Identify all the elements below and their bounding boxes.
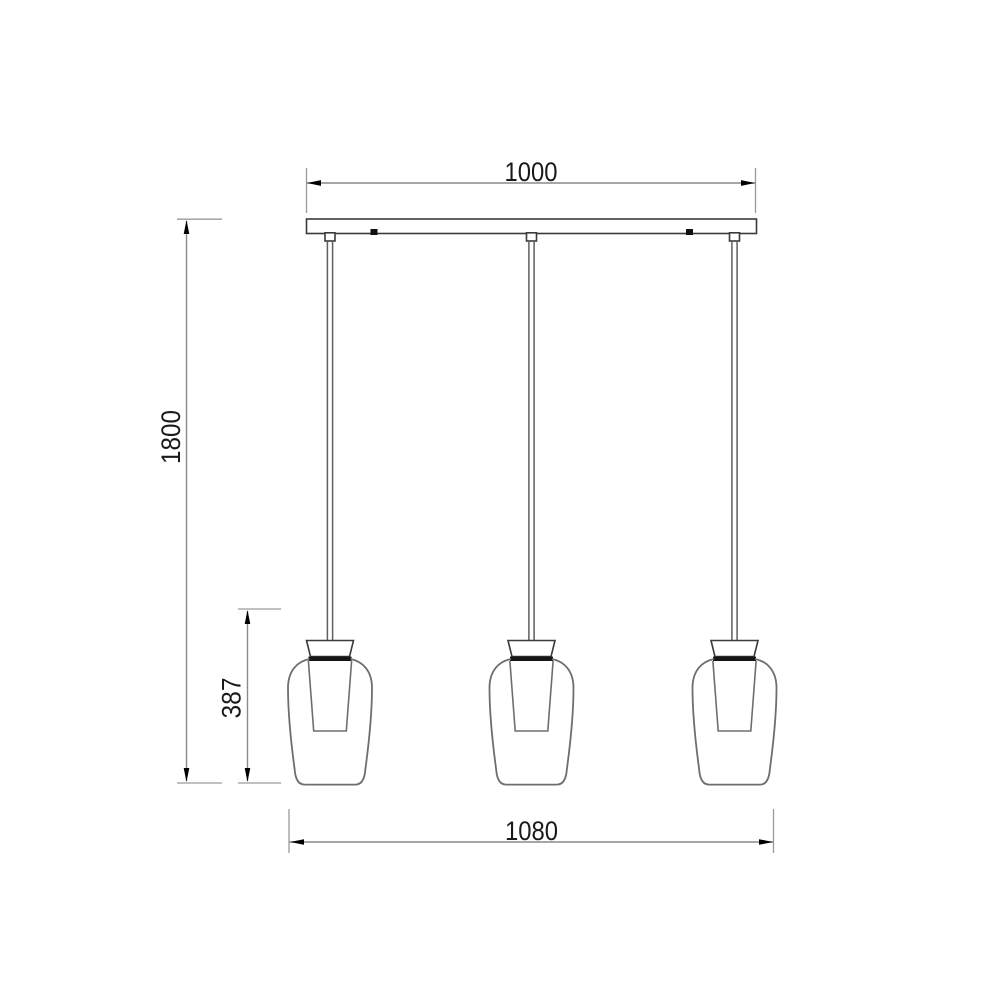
dimension-canopy-width: 1000: [307, 157, 756, 213]
dimension-label-overall-width: 1080: [505, 816, 558, 846]
pendant-right: [693, 233, 777, 785]
arrowhead-left: [307, 180, 321, 186]
arrowhead-down: [184, 768, 190, 782]
dimension-label-canopy-width: 1000: [505, 157, 558, 187]
dimension-drop-height: 1800: [156, 219, 222, 783]
dimension-overall-width: 1080: [289, 809, 774, 853]
mounting-screw-left: [371, 229, 378, 235]
mounting-screw-right: [686, 229, 693, 235]
arrowhead-up: [245, 610, 251, 624]
pendant-left: [288, 233, 372, 785]
pendant-center: [490, 233, 574, 785]
arrowhead-left: [290, 839, 304, 845]
arrowhead-down: [245, 768, 251, 782]
technical-drawing-canvas: 1000 1800 387 1080: [0, 0, 1000, 1000]
dimension-shade-height: 387: [217, 609, 282, 783]
arrowhead-right: [759, 839, 773, 845]
arrowhead-right: [741, 180, 755, 186]
arrowhead-up: [184, 220, 190, 234]
dimension-label-drop-height: 1800: [156, 410, 186, 464]
dimension-label-shade-height: 387: [217, 678, 247, 719]
pendant-lamp-dimension-drawing: 1000 1800 387 1080: [0, 0, 1000, 1000]
